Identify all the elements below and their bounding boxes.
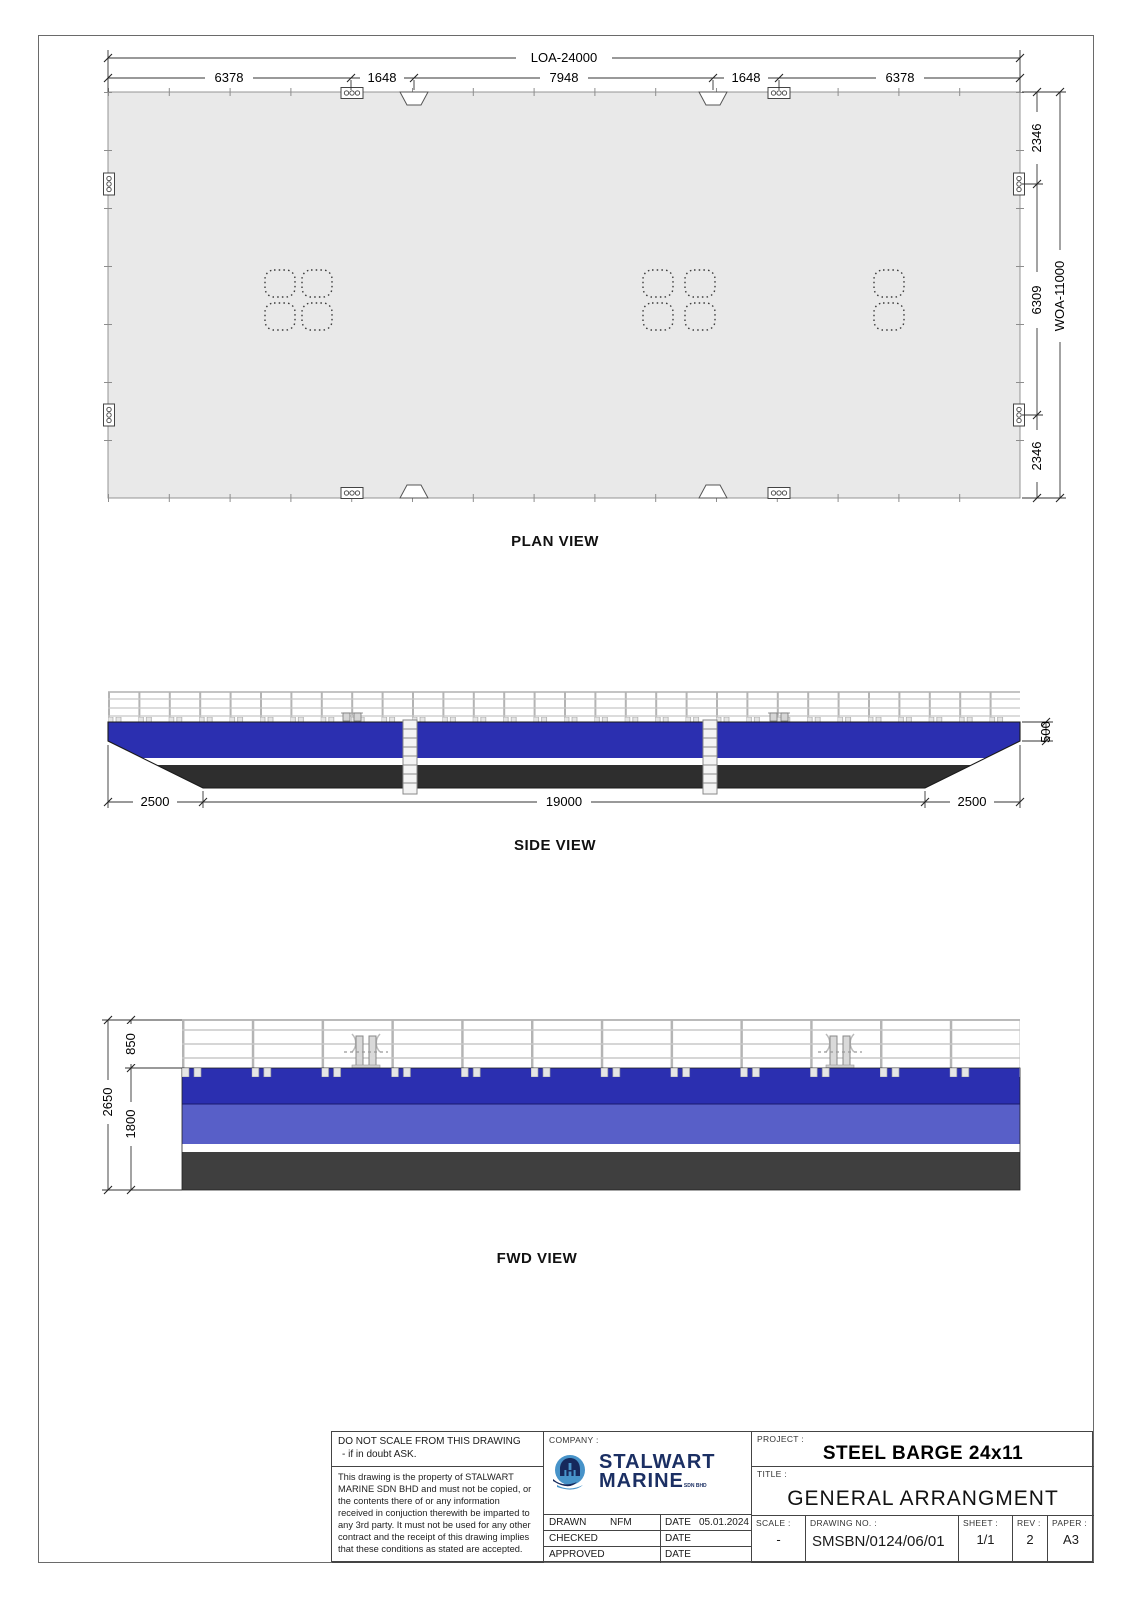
approved-date-label: DATE — [665, 1549, 691, 1563]
fwd-hull-white-stripe — [182, 1144, 1020, 1152]
plan-frame-ticks-right — [1016, 92, 1024, 498]
plan-frame-ticks-left — [104, 92, 112, 498]
paper-label: PAPER : — [1052, 1518, 1090, 1528]
note-property: This drawing is the property of STALWART… — [332, 1467, 544, 1563]
dim-loa: LOA-24000 — [531, 50, 598, 65]
fwd-railing-bases — [182, 1068, 1020, 1077]
plan-view: LOA-24000 6378 1648 7948 1648 6378 2346 … — [104, 50, 1069, 502]
dim-seg-3: 7948 — [550, 70, 579, 85]
dim-hull-depth: 1800 — [123, 1110, 138, 1139]
title-value: GENERAL ARRANGMENT — [757, 1487, 1089, 1511]
drawn-value: NFM — [610, 1515, 660, 1530]
drawing-no-value: SMSBN/0124/06/01 — [810, 1533, 954, 1550]
side-hull-dark-band — [108, 765, 1020, 788]
note-do-not-scale-line2: - if in doubt ASK. — [338, 1449, 537, 1462]
plan-view-label: PLAN VIEW — [445, 533, 665, 550]
approved-value — [610, 1547, 660, 1563]
project-label: PROJECT : — [757, 1434, 804, 1444]
fwd-hull-light-blue-band — [182, 1104, 1020, 1144]
fwd-view-label: FWD VIEW — [427, 1250, 647, 1267]
checked-label: CHECKED — [544, 1531, 610, 1546]
dim-flat-bottom: 19000 — [546, 794, 582, 809]
drawing-no-label: DRAWING NO. : — [810, 1518, 954, 1528]
sheet-label: SHEET : — [963, 1518, 1008, 1528]
paper-value: A3 — [1052, 1532, 1090, 1547]
fwd-view: 850 1800 2650 — [100, 1016, 1020, 1194]
note-do-not-scale: DO NOT SCALE FROM THIS DRAWING - if in d… — [332, 1432, 544, 1467]
checked-date-label: DATE — [665, 1533, 691, 1546]
dim-seg-5: 6378 — [886, 70, 915, 85]
company-suffix: SDN BHD — [684, 1483, 707, 1489]
dim-side-1: 2346 — [1029, 124, 1044, 153]
dim-total-height: 2650 — [100, 1088, 115, 1117]
side-hull — [108, 722, 1020, 788]
scale-label: SCALE : — [756, 1518, 801, 1528]
dim-seg-1: 6378 — [215, 70, 244, 85]
company-name-line2: MARINESDN BHD — [599, 1472, 716, 1491]
sheet-cell: SHEET : 1/1 — [959, 1516, 1013, 1563]
dim-seg-4: 1648 — [732, 70, 761, 85]
approval-row-drawn: DRAWN NFM DATE05.01.2024 — [544, 1515, 752, 1531]
dim-rail-height: 850 — [123, 1033, 138, 1055]
title-cell: TITLE : GENERAL ARRANGMENT — [752, 1467, 1094, 1516]
title-label: TITLE : — [757, 1469, 787, 1479]
company-label: COMPANY : — [549, 1435, 746, 1445]
plan-deck — [108, 92, 1020, 498]
dim-woa: WOA-11000 — [1052, 261, 1067, 332]
dim-rake-left: 2500 — [141, 794, 170, 809]
note-do-not-scale-line1: DO NOT SCALE FROM THIS DRAWING — [338, 1436, 537, 1449]
dim-end-depth: 500 — [1038, 721, 1053, 743]
dim-seg-2: 1648 — [368, 70, 397, 85]
company-name: STALWART MARINESDN BHD — [599, 1453, 716, 1491]
dim-rake-right: 2500 — [958, 794, 987, 809]
side-view-label: SIDE VIEW — [445, 837, 665, 854]
side-railing-bases — [108, 717, 1020, 722]
approved-label: APPROVED — [544, 1547, 610, 1563]
dim-side-2: 6309 — [1029, 286, 1044, 315]
approval-row-checked: CHECKED DATE — [544, 1531, 752, 1547]
company-cell: COMPANY : STALWART MARINESDN BHD — [544, 1432, 752, 1515]
scale-cell: SCALE : - — [752, 1516, 806, 1563]
dim-side-3: 2346 — [1029, 442, 1044, 471]
checked-value — [610, 1531, 660, 1546]
plan-frame-ticks-top — [108, 88, 1020, 96]
company-logo: STALWART MARINESDN BHD — [549, 1449, 746, 1495]
rev-value: 2 — [1017, 1532, 1043, 1547]
fwd-hull-dark-band — [182, 1152, 1020, 1190]
side-hull-white-stripe — [108, 758, 1020, 765]
rev-label: REV : — [1017, 1518, 1043, 1528]
project-value: STEEL BARGE 24x11 — [757, 1443, 1089, 1465]
side-hull-blue-band — [108, 722, 1020, 758]
rev-cell: REV : 2 — [1013, 1516, 1048, 1563]
side-view: 2500 19000 2500 500 — [104, 692, 1053, 809]
drawn-label: DRAWN — [544, 1515, 610, 1530]
approval-row-approved: APPROVED DATE — [544, 1547, 752, 1563]
drawn-date-label: DATE — [665, 1517, 691, 1530]
sheet-value: 1/1 — [963, 1532, 1008, 1547]
title-block: DO NOT SCALE FROM THIS DRAWING - if in d… — [331, 1431, 1093, 1562]
scale-value: - — [756, 1532, 801, 1547]
stalwart-marine-logo-icon — [549, 1449, 595, 1495]
barge-drawing-canvas: LOA-24000 6378 1648 7948 1648 6378 2346 … — [0, 0, 1131, 1600]
drawn-date-value: 05.01.2024 — [699, 1517, 749, 1530]
paper-cell: PAPER : A3 — [1048, 1516, 1094, 1563]
drawing-no-cell: DRAWING NO. : SMSBN/0124/06/01 — [806, 1516, 959, 1563]
plan-frame-ticks-bottom — [108, 494, 1020, 502]
project-cell: PROJECT : STEEL BARGE 24x11 — [752, 1432, 1094, 1467]
